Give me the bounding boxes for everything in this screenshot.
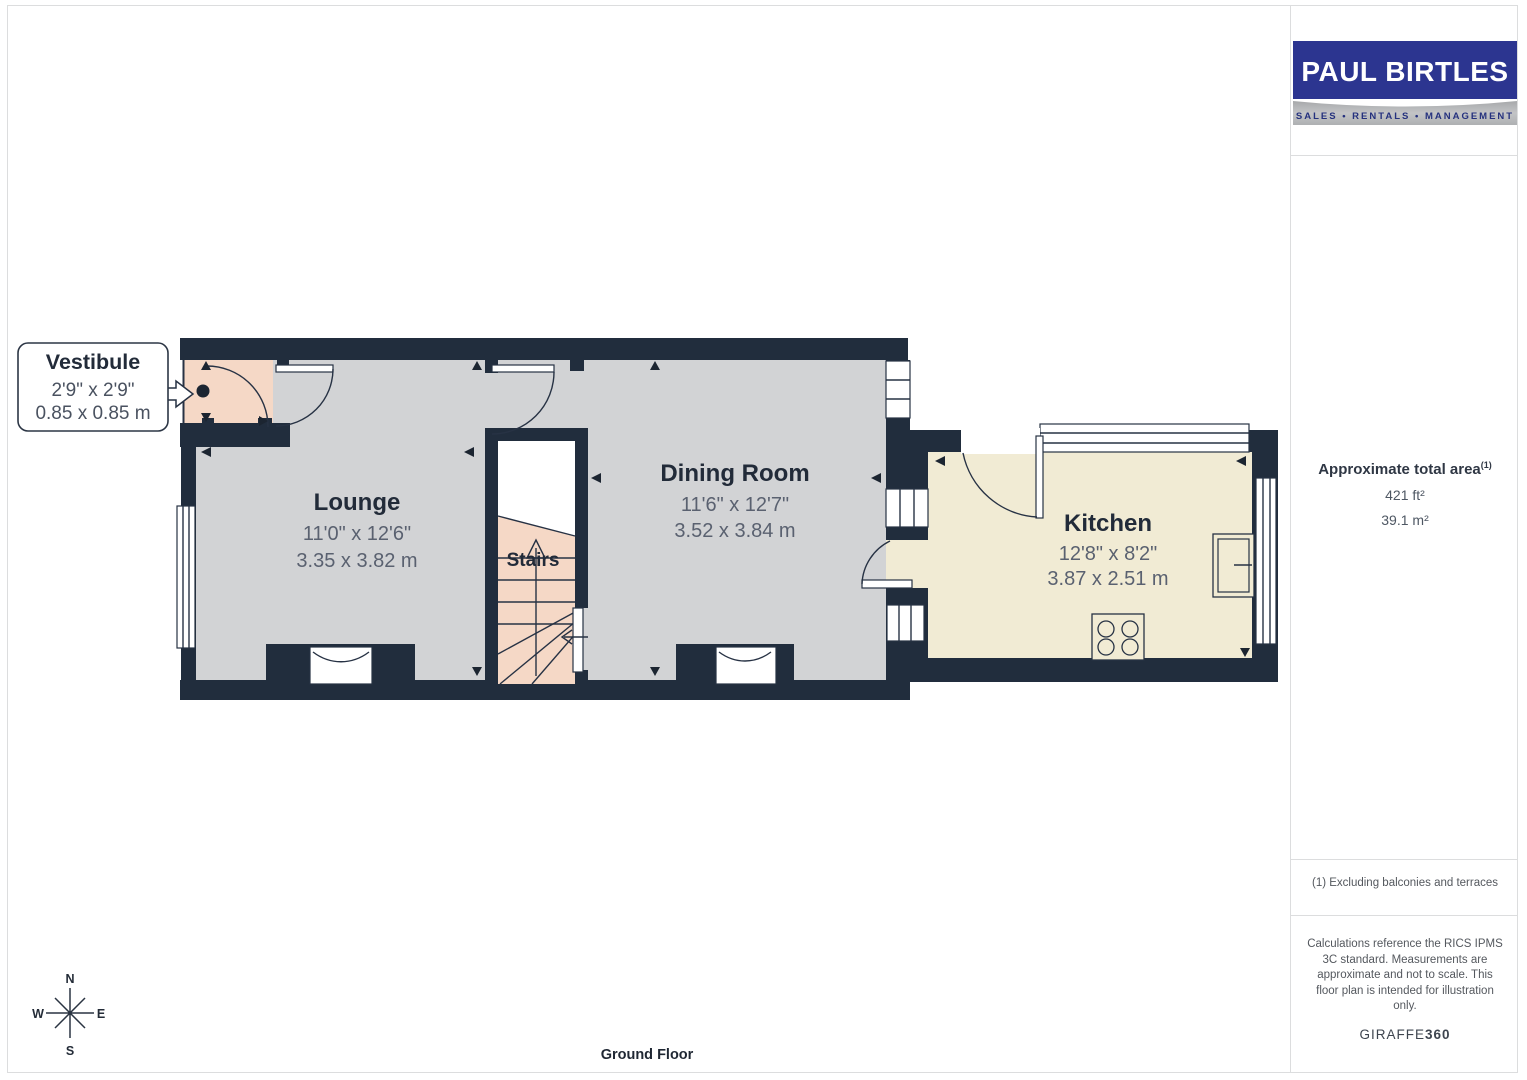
area-summary: Approximate total area(1) 421 ft² 39.1 m… [1291, 460, 1519, 528]
area-metric: 39.1 m² [1291, 512, 1519, 528]
dining-imperial: 11'6" x 12'7" [681, 494, 789, 516]
lounge-fireplace [310, 647, 372, 684]
agency-logo: PAUL BIRTLES SALES • RENTALS • MANAGEMEN… [1293, 41, 1517, 125]
kitchen-right-window [1256, 478, 1276, 644]
floor-plan: Vestibule 2'9" x 2'9" 0.85 x 0.85 m Loun… [0, 0, 1290, 1080]
logo-title: PAUL BIRTLES [1301, 56, 1508, 87]
rear-doorway-gap [961, 428, 1040, 454]
sidebar-line-3 [1291, 915, 1518, 916]
dining-metric: 3.52 x 3.84 m [674, 520, 795, 542]
area-title-sup: (1) [1481, 460, 1492, 470]
lounge-side-window [177, 506, 195, 648]
hob [1092, 614, 1144, 660]
dining-fireplace [716, 647, 776, 684]
compass-east: E [97, 1007, 105, 1021]
floor-title: Ground Floor [601, 1047, 694, 1063]
lounge-imperial: 11'0" x 12'6" [303, 523, 411, 545]
disclaimer-text: Calculations reference the RICS IPMS 3C … [1305, 937, 1505, 1015]
rear-door-leaf [1036, 436, 1043, 518]
dining-kitchen-window-lower [887, 605, 924, 641]
giraffe360-brand: GIRAFFE360 [1291, 1027, 1519, 1042]
kitchen-door-leaf [862, 580, 912, 588]
sink [1213, 534, 1254, 597]
brand-suffix: 360 [1425, 1027, 1451, 1042]
floorplan-page: Vestibule 2'9" x 2'9" 0.85 x 0.85 m Loun… [0, 0, 1527, 1080]
sidebar-divider [1290, 5, 1291, 1073]
compass-icon [46, 988, 94, 1038]
kitchen-imperial: 12'8" x 8'2" [1059, 543, 1158, 565]
kitchen-top-window [1040, 424, 1249, 452]
compass-south: S [66, 1044, 74, 1058]
stairs-label: Stairs [507, 550, 560, 571]
dining-kitchen-window-upper [886, 489, 928, 527]
sidebar-line-1 [1291, 155, 1518, 156]
dining-rear-window [886, 361, 910, 418]
entrance-dot [197, 385, 210, 398]
dining-label: Dining Room [660, 460, 809, 487]
lounge-metric: 3.35 x 3.82 m [296, 550, 417, 572]
kitchen-label: Kitchen [1064, 510, 1152, 537]
vestibule-metric: 0.85 x 0.85 m [35, 403, 150, 424]
sidebar-line-2 [1291, 859, 1518, 860]
stairs-entry-door-leaf [573, 608, 583, 672]
area-title: Approximate total area(1) [1291, 460, 1519, 478]
vestibule-callout: Vestibule 2'9" x 2'9" 0.85 x 0.85 m [18, 343, 168, 431]
lounge-door-leaf [276, 365, 333, 372]
logo-subtitle: SALES • RENTALS • MANAGEMENT [1296, 111, 1514, 122]
lounge-label: Lounge [314, 489, 401, 516]
kitchen-metric: 3.87 x 2.51 m [1047, 568, 1168, 590]
compass-north: N [65, 972, 74, 986]
vestibule-imperial: 2'9" x 2'9" [51, 380, 134, 401]
dining-door-leaf [492, 365, 554, 372]
area-imperial: 421 ft² [1291, 487, 1519, 503]
area-title-text: Approximate total area [1318, 461, 1481, 478]
compass-west: W [32, 1007, 44, 1021]
area-footnote: (1) Excluding balconies and terraces [1291, 877, 1519, 889]
vestibule-label: Vestibule [46, 350, 140, 374]
brand-name: GIRAFFE [1359, 1027, 1425, 1042]
